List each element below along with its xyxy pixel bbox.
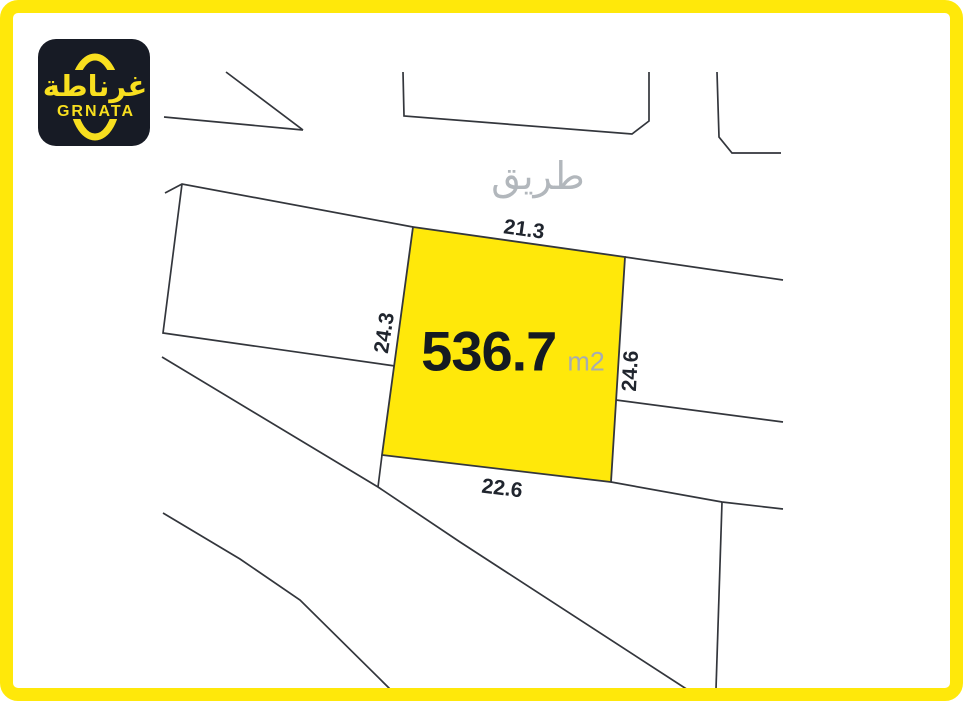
dimension-bottom: 22.6 xyxy=(480,475,523,504)
logo-latin-text: GRNATA xyxy=(57,103,135,120)
parcel-fragment-top-right xyxy=(717,72,781,153)
road-edge-lower xyxy=(163,513,392,691)
dimension-right: 24.6 xyxy=(618,350,644,392)
road-label: طريق xyxy=(491,154,584,198)
parcel-fragment-top-center xyxy=(403,72,649,134)
right-divider-3 xyxy=(611,482,783,509)
boundary-extension xyxy=(378,455,382,487)
right-divider-vertical xyxy=(716,502,722,689)
right-divider-1 xyxy=(625,257,783,280)
parcel-fragment-top-left xyxy=(164,72,303,130)
plot-area-unit: m2 xyxy=(567,347,605,378)
plot-area: 536.7 m2 xyxy=(421,319,605,384)
right-divider-2 xyxy=(616,400,783,422)
logo-arabic-text: غرناطة xyxy=(43,69,148,103)
plot-map-page: طريق 536.7 m2 21.3 24.3 24.6 22.6 غرناطة… xyxy=(0,0,963,701)
grnata-logo: غرناطة GRNATA xyxy=(38,39,150,146)
plot-area-value: 536.7 xyxy=(421,319,556,384)
grnata-logo-graphic: غرناطة GRNATA xyxy=(38,39,150,146)
